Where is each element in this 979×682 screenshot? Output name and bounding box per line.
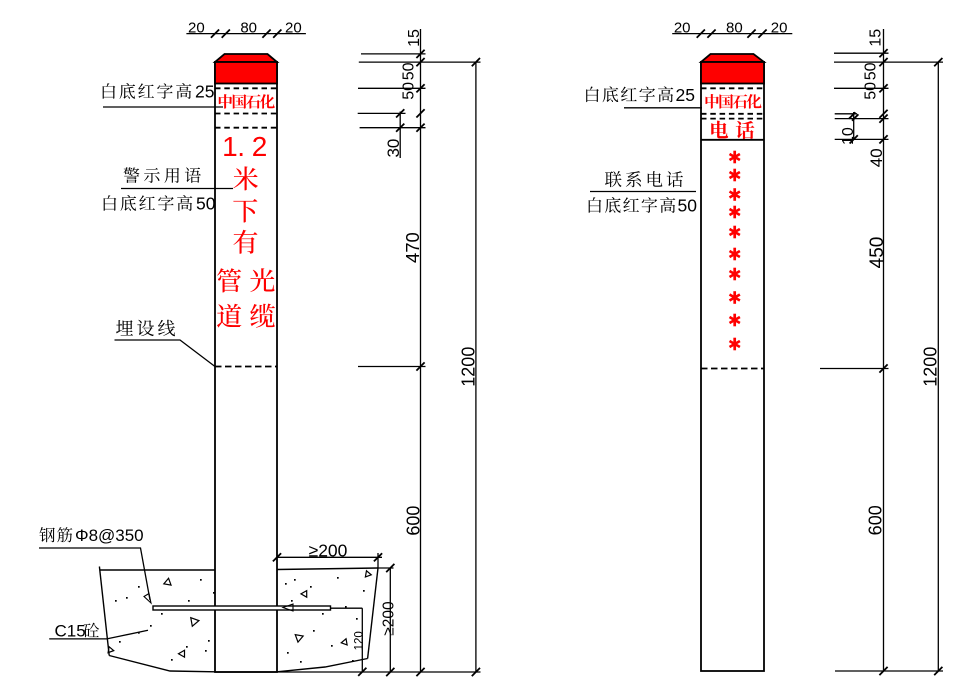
svg-text:50: 50: [401, 62, 418, 80]
svg-text:40: 40: [867, 148, 886, 167]
svg-text:C15: C15: [55, 622, 86, 641]
svg-text:20: 20: [188, 19, 205, 36]
svg-text:50: 50: [862, 82, 879, 100]
svg-text:600: 600: [866, 505, 886, 535]
svg-text:25: 25: [195, 82, 214, 102]
svg-text:1. 2: 1. 2: [222, 131, 267, 162]
svg-text:25: 25: [676, 85, 695, 105]
svg-text:1200: 1200: [921, 347, 941, 387]
svg-text:80: 80: [240, 19, 257, 36]
svg-text:50: 50: [862, 62, 879, 80]
svg-text:≥200: ≥200: [381, 601, 398, 636]
svg-text:50: 50: [678, 196, 698, 216]
svg-text:450: 450: [867, 237, 888, 269]
svg-text:≥200: ≥200: [309, 541, 348, 561]
svg-text:20: 20: [285, 19, 302, 36]
svg-text:50: 50: [401, 82, 418, 100]
svg-text:15: 15: [406, 29, 423, 47]
svg-text:120: 120: [354, 631, 366, 650]
svg-text:20: 20: [771, 19, 788, 36]
svg-text:50: 50: [196, 194, 216, 214]
svg-text:1200: 1200: [458, 347, 478, 387]
svg-text:Φ8@350: Φ8@350: [75, 526, 144, 545]
svg-text:80: 80: [726, 19, 743, 36]
svg-text:470: 470: [402, 232, 423, 263]
svg-text:600: 600: [404, 506, 424, 536]
svg-text:30: 30: [384, 139, 403, 158]
svg-text:20: 20: [674, 19, 691, 36]
svg-text:15: 15: [868, 29, 885, 47]
svg-text:10: 10: [840, 127, 857, 145]
